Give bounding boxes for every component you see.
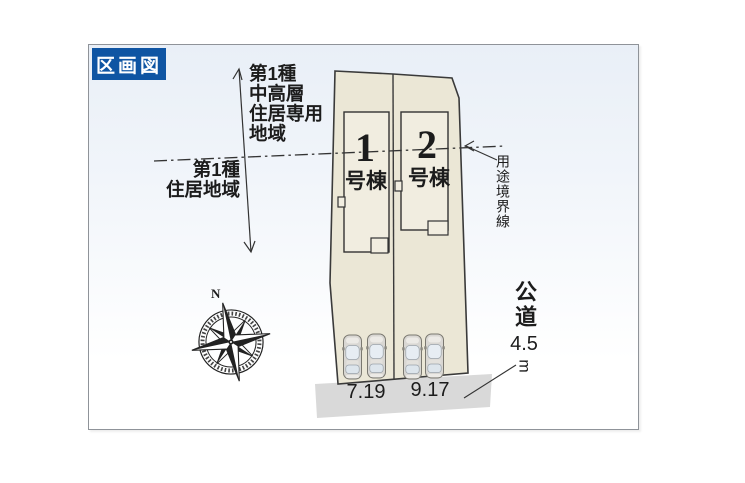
- plot-2-frontage-dimension: 9.17: [403, 379, 457, 402]
- use-boundary-label: 用途境界線: [493, 154, 513, 238]
- compass-icon: [184, 295, 279, 390]
- car-icon: [402, 335, 423, 379]
- site-plan-figure: 区画図 第1種 中高層 住居専用 地域 第1種 住居地域 用途境界線 1 号棟 …: [0, 0, 745, 483]
- plot-1-suffix: 号棟: [343, 170, 389, 192]
- road-width-unit: m: [517, 359, 531, 372]
- building-1-annex: [371, 238, 388, 253]
- building-1-porch: [338, 197, 345, 207]
- zoning-lower-label: 第1種 住居地域: [150, 160, 240, 200]
- road-name: 公道: [508, 280, 540, 330]
- figure-title-badge: 区画図: [92, 48, 166, 80]
- car-icon: [366, 334, 387, 378]
- building-2-porch: [395, 181, 402, 191]
- plot-2-number: 2: [412, 125, 442, 165]
- building-2-annex: [428, 221, 448, 235]
- public-road-label: 公道 4.5 m: [507, 280, 541, 373]
- plot-1-frontage-dimension: 7.19: [339, 381, 393, 404]
- zoning-upper-label: 第1種 中高層 住居専用 地域: [249, 64, 345, 144]
- car-icon: [342, 335, 363, 379]
- car-icon: [424, 334, 445, 378]
- road-width-value: 4.5: [510, 333, 538, 356]
- plot-2-suffix: 号棟: [406, 167, 452, 189]
- compass-north-label: N: [211, 286, 220, 302]
- figure-title: 区画図: [96, 51, 162, 78]
- plot-1-number: 1: [350, 128, 380, 168]
